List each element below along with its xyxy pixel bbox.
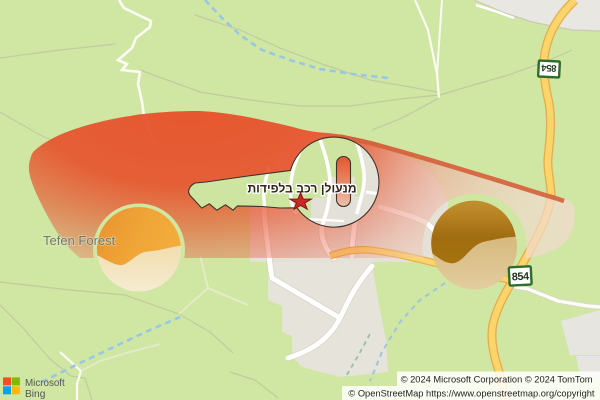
svg-text:854: 854 <box>540 62 557 74</box>
svg-text:Bing: Bing <box>25 389 46 400</box>
svg-text:Microsoft: Microsoft <box>25 378 65 389</box>
svg-text:מנעולן רכב בלפידות: מנעולן רכב בלפידות <box>247 182 356 196</box>
svg-text:Tefen Forest: Tefen Forest <box>43 233 116 248</box>
svg-text:© OpenStreetMap https://www.op: © OpenStreetMap https://www.openstreetma… <box>348 389 595 399</box>
svg-text:© 2024 Microsoft Corporation ©: © 2024 Microsoft Corporation © 2024 TomT… <box>401 375 593 385</box>
svg-text:854: 854 <box>512 271 530 284</box>
